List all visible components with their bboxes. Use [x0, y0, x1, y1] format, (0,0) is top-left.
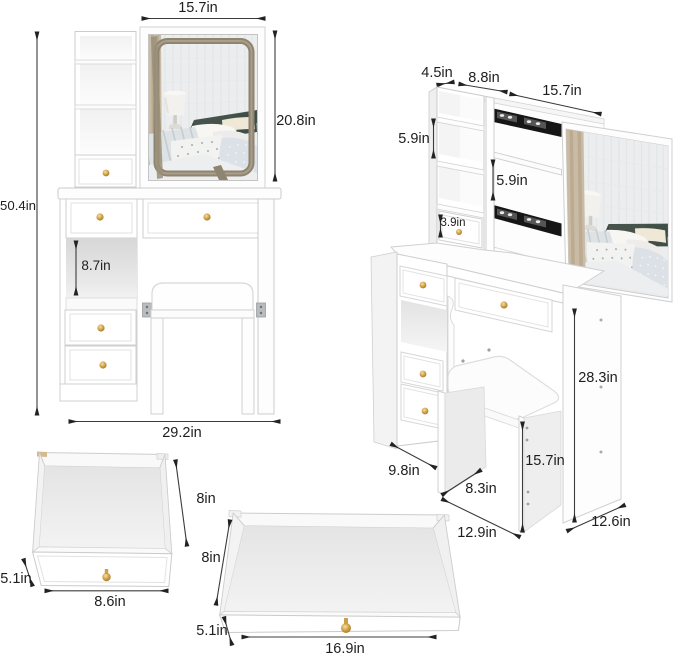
svg-text:12.6in: 12.6in	[591, 514, 631, 530]
svg-text:5.1in: 5.1in	[0, 571, 31, 587]
svg-text:8.8in: 8.8in	[468, 70, 499, 86]
svg-text:15.7in: 15.7in	[525, 453, 565, 469]
svg-text:5.1in: 5.1in	[196, 623, 227, 639]
svg-text:4.5in: 4.5in	[421, 65, 452, 81]
svg-text:5.9in: 5.9in	[398, 131, 429, 147]
svg-text:15.7in: 15.7in	[178, 0, 218, 16]
svg-text:8.6in: 8.6in	[94, 594, 125, 610]
svg-text:8in: 8in	[201, 550, 220, 566]
svg-text:5.9in: 5.9in	[496, 173, 527, 189]
svg-text:12.9in: 12.9in	[457, 525, 497, 541]
svg-text:50.4in: 50.4in	[0, 198, 36, 213]
svg-text:20.8in: 20.8in	[276, 113, 316, 129]
svg-text:16.9in: 16.9in	[325, 641, 365, 655]
svg-text:28.3in: 28.3in	[578, 370, 618, 386]
svg-text:3.9in: 3.9in	[441, 217, 466, 229]
svg-text:29.2in: 29.2in	[162, 425, 202, 441]
svg-text:8.7in: 8.7in	[81, 258, 110, 273]
svg-text:8.3in: 8.3in	[465, 481, 496, 497]
svg-text:9.8in: 9.8in	[388, 463, 419, 479]
svg-text:8in: 8in	[196, 491, 215, 507]
svg-text:15.7in: 15.7in	[542, 83, 582, 99]
